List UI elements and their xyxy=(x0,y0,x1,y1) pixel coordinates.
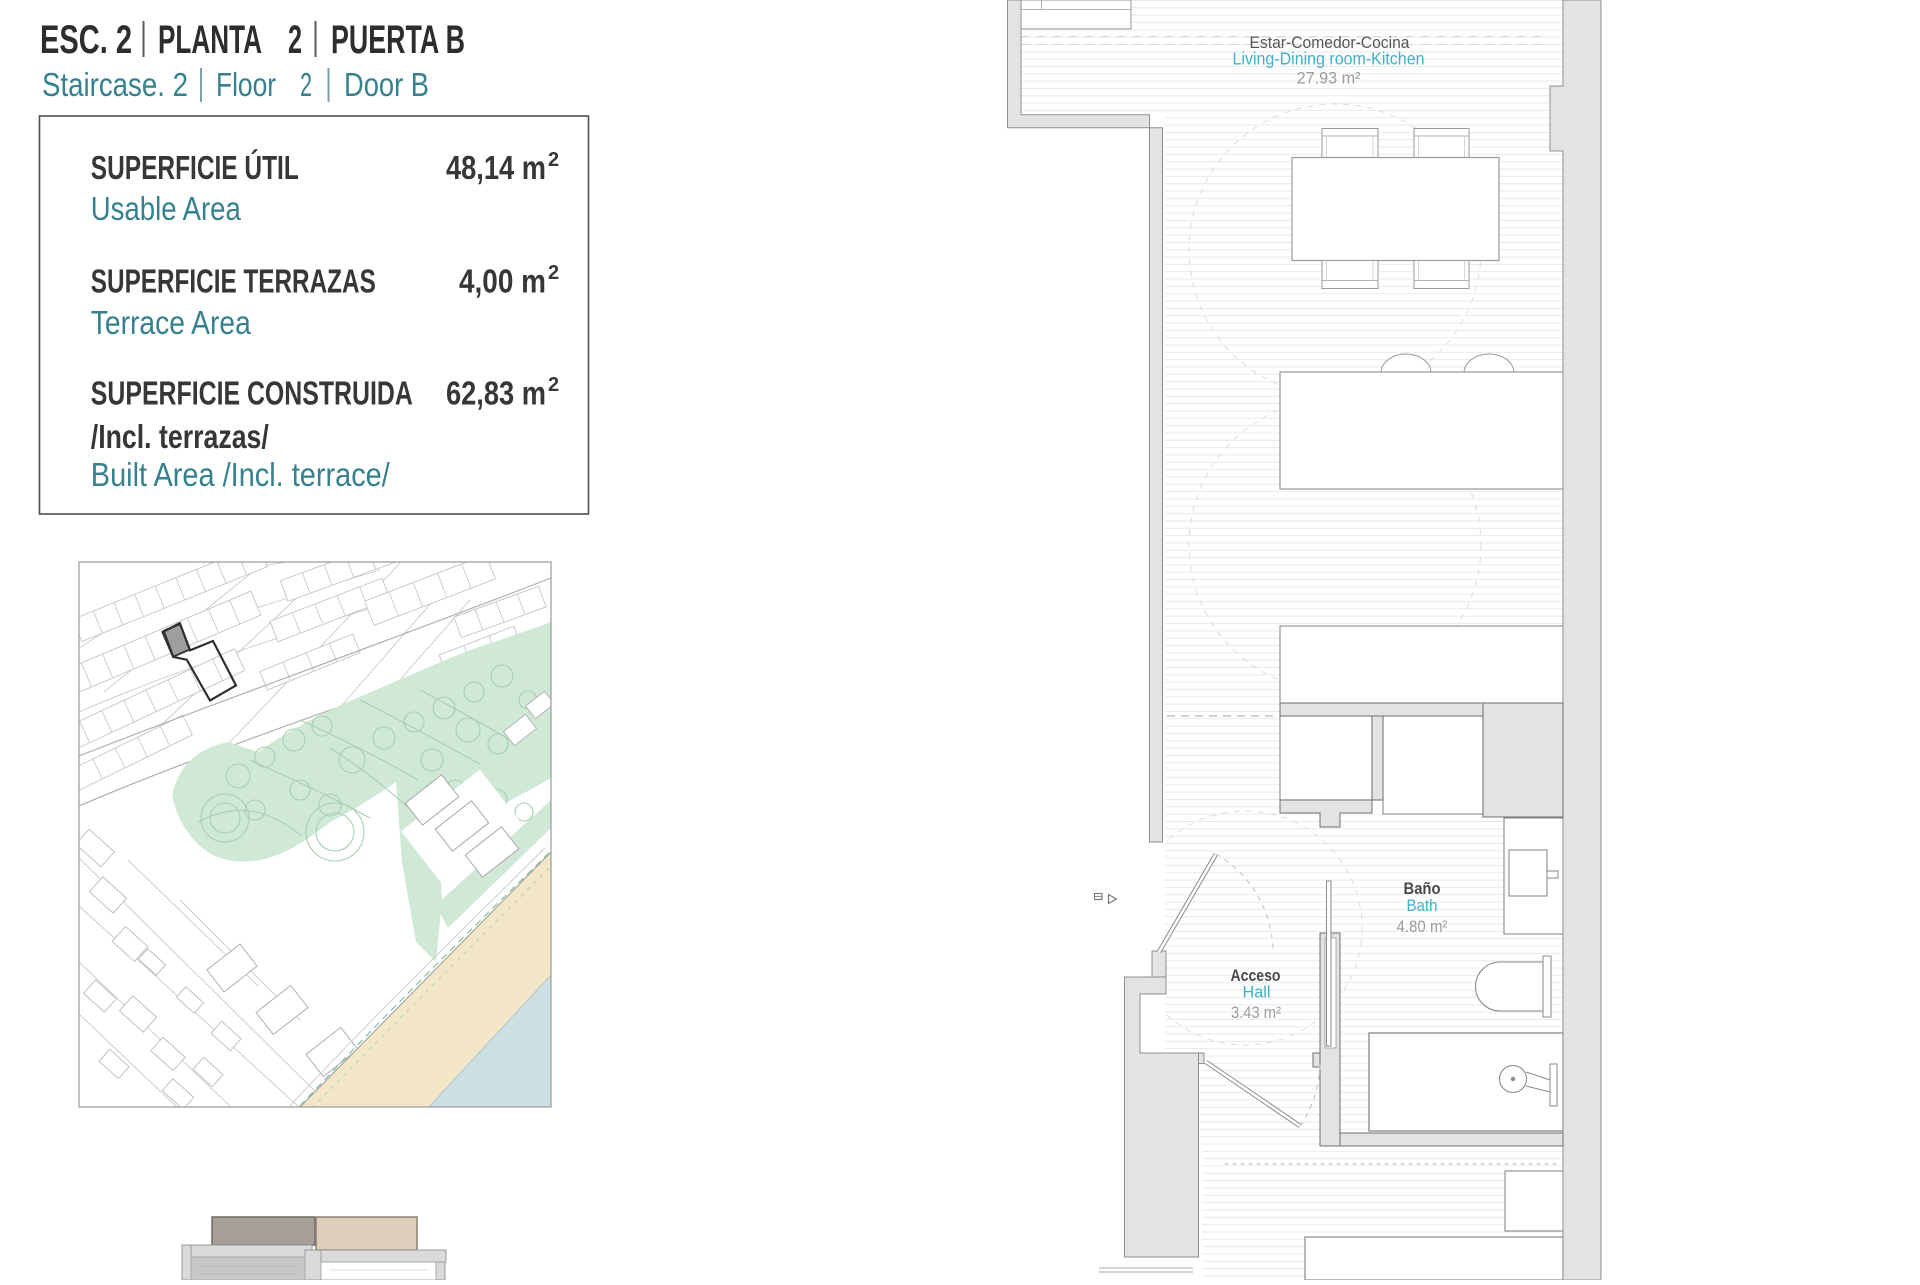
svg-text:Door B: Door B xyxy=(344,66,429,103)
svg-text:2: 2 xyxy=(300,66,312,103)
svg-text:Terrace Area: Terrace Area xyxy=(91,304,252,341)
svg-text:62,83 m: 62,83 m xyxy=(446,376,546,413)
svg-text:SUPERFICIE TERRAZAS: SUPERFICIE TERRAZAS xyxy=(91,264,376,301)
svg-text:4,00 m: 4,00 m xyxy=(459,264,546,301)
svg-text:2: 2 xyxy=(548,262,559,284)
svg-text:Built Area /Incl. terrace/: Built Area /Incl. terrace/ xyxy=(91,456,391,493)
svg-text:3.43 m²: 3.43 m² xyxy=(1231,1004,1281,1022)
svg-text:Staircase. 2: Staircase. 2 xyxy=(42,66,188,103)
svg-text:PLANTA: PLANTA xyxy=(158,18,262,62)
svg-text:27.93 m²: 27.93 m² xyxy=(1297,69,1361,88)
svg-text:PUERTA B: PUERTA B xyxy=(331,18,465,62)
svg-text:Acceso: Acceso xyxy=(1231,966,1281,985)
svg-text:48,14 m: 48,14 m xyxy=(446,150,546,187)
svg-text:4.80 m²: 4.80 m² xyxy=(1397,918,1448,936)
svg-text:SUPERFICIE CONSTRUIDA: SUPERFICIE CONSTRUIDA xyxy=(91,376,413,413)
svg-text:ESC. 2: ESC. 2 xyxy=(40,18,132,62)
svg-text:Living-Dining room-Kitchen: Living-Dining room-Kitchen xyxy=(1233,49,1425,69)
svg-text:Floor: Floor xyxy=(216,66,276,103)
svg-text:/Incl. terrazas/: /Incl. terrazas/ xyxy=(91,419,269,456)
svg-text:2: 2 xyxy=(548,149,559,171)
svg-text:Usable Area: Usable Area xyxy=(91,190,242,227)
svg-text:Hall: Hall xyxy=(1243,984,1271,1002)
svg-text:Bath: Bath xyxy=(1407,897,1438,915)
svg-text:SUPERFICIE ÚTIL: SUPERFICIE ÚTIL xyxy=(91,149,299,187)
svg-text:2: 2 xyxy=(548,374,559,396)
svg-text:2: 2 xyxy=(288,18,302,62)
svg-text:Baño: Baño xyxy=(1404,879,1441,898)
